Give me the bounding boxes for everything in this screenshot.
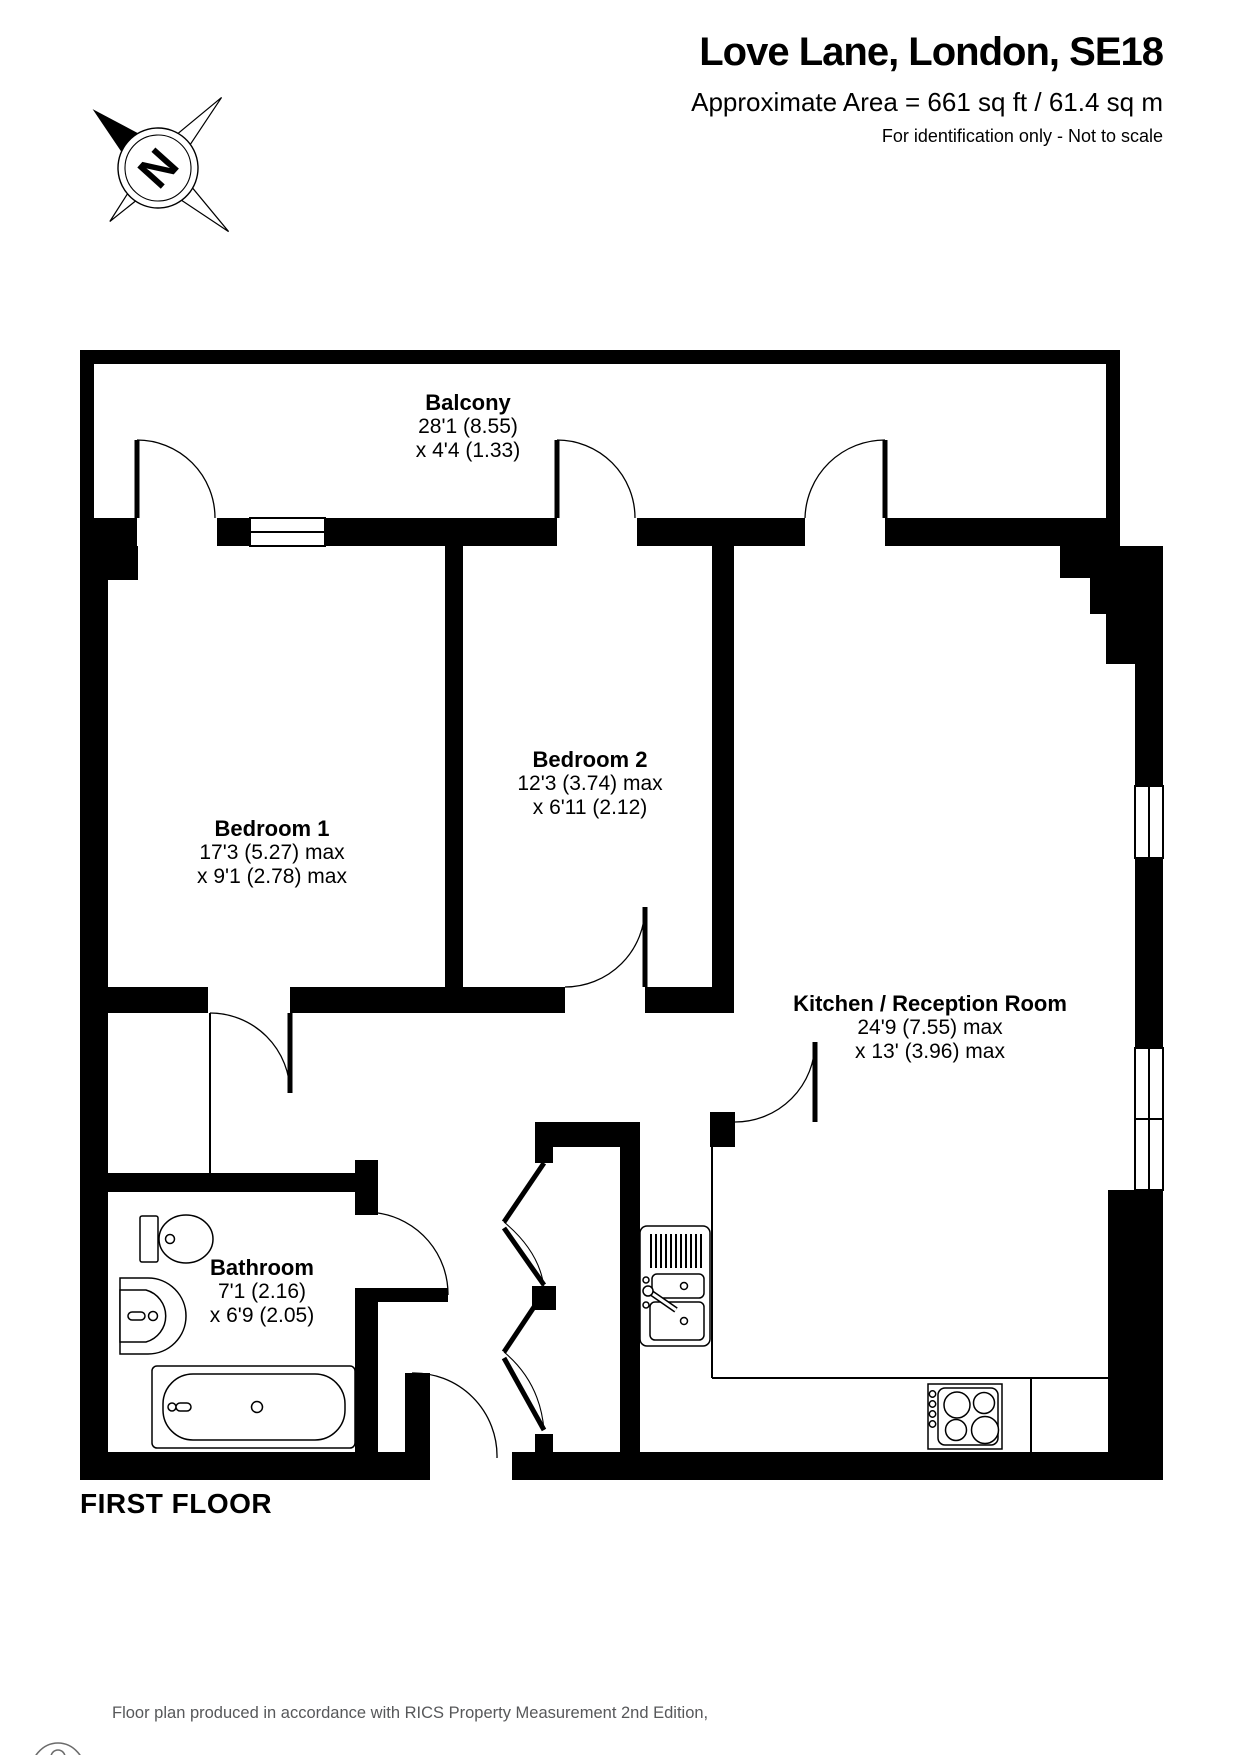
kitchen-sink-unit bbox=[640, 1226, 710, 1346]
room-dims: 24'9 (7.55) max bbox=[750, 1016, 1110, 1040]
floor-label: FIRST FLOOR bbox=[80, 1488, 272, 1520]
kitchen-window-upper bbox=[1135, 786, 1163, 858]
room-name: Balcony bbox=[318, 391, 618, 415]
room-dims: x 6'11 (2.12) bbox=[440, 796, 740, 820]
balcony-door-bedroom1 bbox=[137, 440, 215, 518]
kitchen-hob bbox=[928, 1384, 1002, 1449]
bedroom1-door bbox=[210, 1013, 290, 1093]
kitchen-window-lower bbox=[1135, 1048, 1163, 1190]
person-icon bbox=[28, 1741, 92, 1755]
hall-bifold-doors bbox=[504, 1163, 544, 1430]
room-dims: 7'1 (2.16) bbox=[112, 1280, 412, 1304]
room-label-bathroom: Bathroom 7'1 (2.16) x 6'9 (2.05) bbox=[112, 1256, 412, 1328]
room-name: Bedroom 2 bbox=[440, 748, 740, 772]
room-dims: x 6'9 (2.05) bbox=[112, 1304, 412, 1328]
room-dims: 28'1 (8.55) bbox=[318, 415, 618, 439]
room-dims: 17'3 (5.27) max bbox=[122, 841, 422, 865]
room-dims: x 9'1 (2.78) max bbox=[122, 865, 422, 889]
compass-rose: N bbox=[44, 39, 292, 286]
approximate-area: Approximate Area = 661 sq ft / 61.4 sq m bbox=[691, 87, 1163, 118]
header: Love Lane, London, SE18 Approximate Area… bbox=[691, 30, 1163, 147]
balcony-door-kitchen bbox=[805, 440, 885, 518]
footer-line1: Floor plan produced in accordance with R… bbox=[112, 1703, 867, 1724]
floor-plan-page: N bbox=[0, 0, 1241, 1755]
kitchen-fixtures bbox=[640, 1226, 1002, 1449]
footer: Floor plan produced in accordance with R… bbox=[28, 1662, 1213, 1755]
bedroom2-door bbox=[565, 907, 645, 987]
room-label-bedroom2: Bedroom 2 12'3 (3.74) max x 6'11 (2.12) bbox=[440, 748, 740, 820]
room-name: Bathroom bbox=[112, 1256, 412, 1280]
room-name: Kitchen / Reception Room bbox=[750, 992, 1110, 1016]
room-dims: x 4'4 (1.33) bbox=[318, 439, 618, 463]
bathroom-fixtures bbox=[120, 1215, 355, 1448]
scale-disclaimer: For identification only - Not to scale bbox=[691, 126, 1163, 147]
footer-text: Floor plan produced in accordance with R… bbox=[112, 1662, 867, 1755]
room-label-kitchen-reception: Kitchen / Reception Room 24'9 (7.55) max… bbox=[750, 992, 1110, 1064]
bathtub bbox=[152, 1366, 355, 1448]
page-title: Love Lane, London, SE18 bbox=[691, 30, 1163, 75]
balcony-window bbox=[250, 518, 325, 546]
room-label-bedroom1: Bedroom 1 17'3 (5.27) max x 9'1 (2.78) m… bbox=[122, 817, 422, 889]
room-dims: x 13' (3.96) max bbox=[750, 1040, 1110, 1064]
room-label-balcony: Balcony 28'1 (8.55) x 4'4 (1.33) bbox=[318, 391, 618, 463]
room-dims: 12'3 (3.74) max bbox=[440, 772, 740, 796]
room-name: Bedroom 1 bbox=[122, 817, 422, 841]
